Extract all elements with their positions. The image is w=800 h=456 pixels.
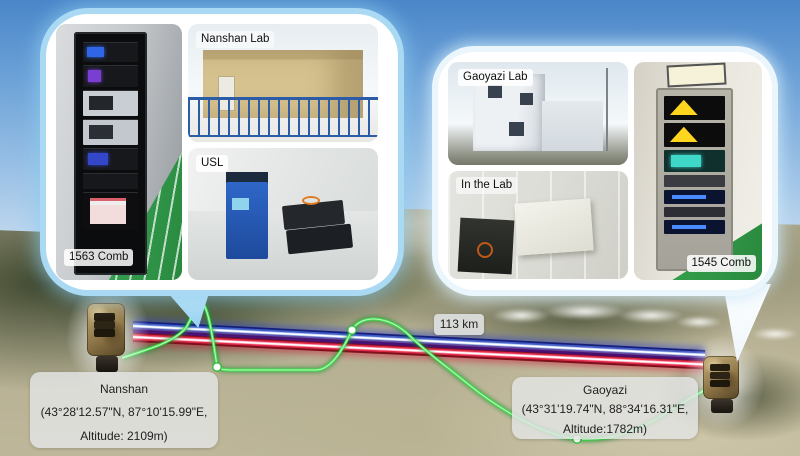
- yellow-spectrum-screen: [670, 127, 698, 142]
- photo-gaoyazi-lab: Gaoyazi Lab: [448, 62, 628, 165]
- rack-caption: 1545 Comb: [687, 255, 756, 272]
- monitor-screen: [667, 63, 727, 88]
- rack-unit: [83, 148, 138, 170]
- building-wing: [542, 101, 603, 150]
- snow-cap: [618, 308, 684, 323]
- rack-unit: [664, 175, 725, 187]
- yellow-spectrum-screen: [670, 100, 698, 115]
- equipment-rack: [74, 32, 147, 275]
- rack-unit: [83, 173, 138, 189]
- window: [520, 93, 533, 105]
- snow-cap: [492, 308, 550, 323]
- fiber-spool: [477, 242, 493, 258]
- site-name: Nanshan: [30, 378, 218, 401]
- site-coordinates: (43°31'19.74"N, 88°34'16.31"E,: [512, 400, 698, 419]
- callout-nanshan: 1563 Comb Nanshan Lab USL: [46, 14, 398, 290]
- photo-usl: USL: [188, 148, 378, 280]
- rack-unit: [664, 190, 725, 204]
- photo-1563-comb-rack: 1563 Comb: [56, 24, 182, 280]
- blue-display: [672, 195, 706, 200]
- rack-unit: [664, 220, 725, 234]
- rack-caption: 1563 Comb: [64, 249, 133, 266]
- site-label-gaoyazi: Gaoyazi (43°31'19.74"N, 88°34'16.31"E, A…: [512, 377, 698, 439]
- teal-screen: [671, 155, 701, 166]
- telescope-body: [703, 356, 739, 399]
- telescope-gaoyazi: [698, 352, 748, 414]
- photo-caption: USL: [196, 155, 228, 172]
- photo-1545-comb-rack: 1545 Comb: [634, 62, 762, 280]
- callout-gaoyazi: Gaoyazi Lab In the Lab: [438, 52, 772, 290]
- instrument-screen: [89, 125, 113, 140]
- blue-instrument: [226, 182, 268, 259]
- photo-in-the-lab: In the Lab: [448, 171, 628, 279]
- telescope-mount: [711, 399, 733, 413]
- site-label-nanshan: Nanshan (43°28'12.57"N, 87°10'15.99"E, A…: [30, 372, 218, 448]
- site-coordinates: (43°28'12.57"N, 87°10'15.99"E,: [30, 401, 218, 424]
- laptop-screen: [90, 198, 125, 224]
- rack-unit: [83, 90, 138, 116]
- rack-unit: [83, 119, 138, 145]
- telescope-detail: [94, 313, 115, 321]
- rack-unit: [664, 123, 725, 147]
- fiber-spool: [302, 196, 320, 205]
- rack-unit: [83, 192, 138, 230]
- instrument-display: [232, 198, 249, 210]
- enclosure-box: [515, 199, 594, 256]
- window: [509, 122, 523, 136]
- site-name: Gaoyazi: [512, 381, 698, 400]
- distance-label: 113 km: [434, 314, 484, 335]
- photo-caption: Nanshan Lab: [196, 31, 274, 48]
- site-altitude: Altitude:1782m): [512, 420, 698, 439]
- blue-display: [672, 225, 706, 230]
- snow-cap: [544, 303, 626, 320]
- rack-unit: [664, 96, 725, 120]
- rack-unit: [664, 207, 725, 217]
- instrument-screen: [87, 47, 104, 57]
- photo-caption: Gaoyazi Lab: [458, 69, 533, 86]
- equipment-rack: [656, 88, 733, 271]
- telescope-detail: [710, 364, 730, 370]
- rack-unit: [83, 65, 138, 87]
- instrument-screen: [88, 70, 101, 82]
- rack-unit: [664, 150, 725, 172]
- instrument-screen: [89, 96, 113, 111]
- telescope-body: [87, 303, 124, 356]
- figure-canvas: 113 km Nanshan (43°28'12.57"N, 87°10'15.…: [0, 0, 800, 456]
- site-altitude: Altitude: 2109m): [30, 425, 218, 448]
- rack-unit: [83, 42, 138, 62]
- instrument-screen: [88, 153, 108, 166]
- telescope-nanshan: [82, 298, 134, 374]
- photo-caption: In the Lab: [456, 177, 517, 194]
- snow-cap: [676, 316, 722, 328]
- antenna-mast: [606, 68, 608, 150]
- blue-fence: [188, 97, 378, 137]
- telescope-mount: [96, 356, 119, 373]
- photo-nanshan-lab: Nanshan Lab: [188, 24, 378, 142]
- window: [488, 85, 502, 98]
